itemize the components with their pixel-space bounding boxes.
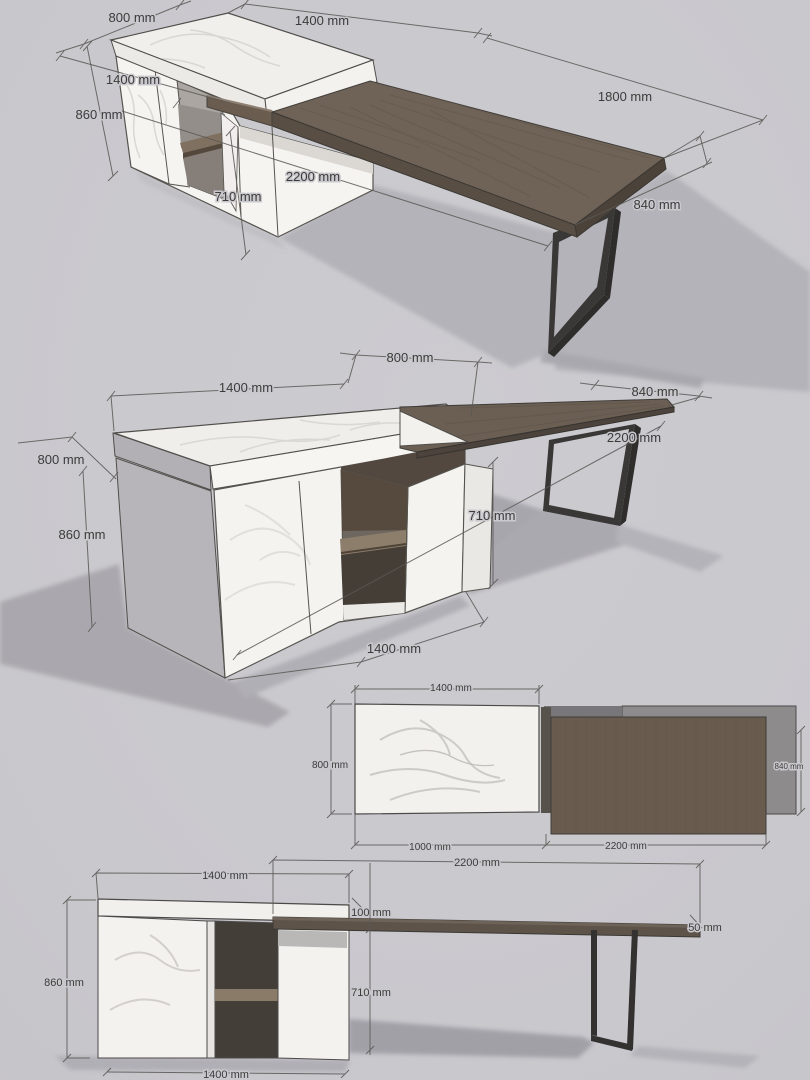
svg-text:1400 mm: 1400 mm [430, 683, 472, 694]
svg-text:50 mm: 50 mm [688, 922, 722, 934]
svg-text:2200 mm: 2200 mm [454, 857, 500, 869]
svg-text:2200 mm: 2200 mm [605, 841, 647, 852]
svg-text:2200 mm: 2200 mm [607, 430, 661, 445]
svg-text:840 mm: 840 mm [634, 197, 681, 212]
svg-text:800 mm: 800 mm [109, 10, 156, 25]
svg-text:710 mm: 710 mm [469, 508, 516, 523]
svg-text:1400 mm: 1400 mm [219, 380, 273, 395]
svg-text:1400 mm: 1400 mm [106, 72, 160, 87]
svg-text:860 mm: 860 mm [44, 977, 84, 989]
svg-text:1000 mm: 1000 mm [409, 842, 451, 853]
svg-text:1400 mm: 1400 mm [295, 13, 349, 28]
svg-text:1400 mm: 1400 mm [202, 870, 248, 882]
svg-text:100 mm: 100 mm [351, 907, 391, 919]
svg-text:1400 mm: 1400 mm [367, 641, 421, 656]
svg-text:800 mm: 800 mm [387, 350, 434, 365]
svg-text:710 mm: 710 mm [215, 189, 262, 204]
svg-text:860 mm: 860 mm [76, 107, 123, 122]
svg-text:860 mm: 860 mm [59, 527, 106, 542]
svg-text:1800 mm: 1800 mm [598, 89, 652, 104]
svg-text:800 mm: 800 mm [312, 760, 348, 771]
svg-text:710 mm: 710 mm [351, 987, 391, 999]
svg-text:840 mm: 840 mm [632, 384, 679, 399]
svg-text:2200 mm: 2200 mm [286, 169, 340, 184]
svg-text:1400 mm: 1400 mm [203, 1069, 249, 1080]
svg-text:800 mm: 800 mm [38, 452, 85, 467]
svg-text:840 mm: 840 mm [775, 762, 804, 771]
